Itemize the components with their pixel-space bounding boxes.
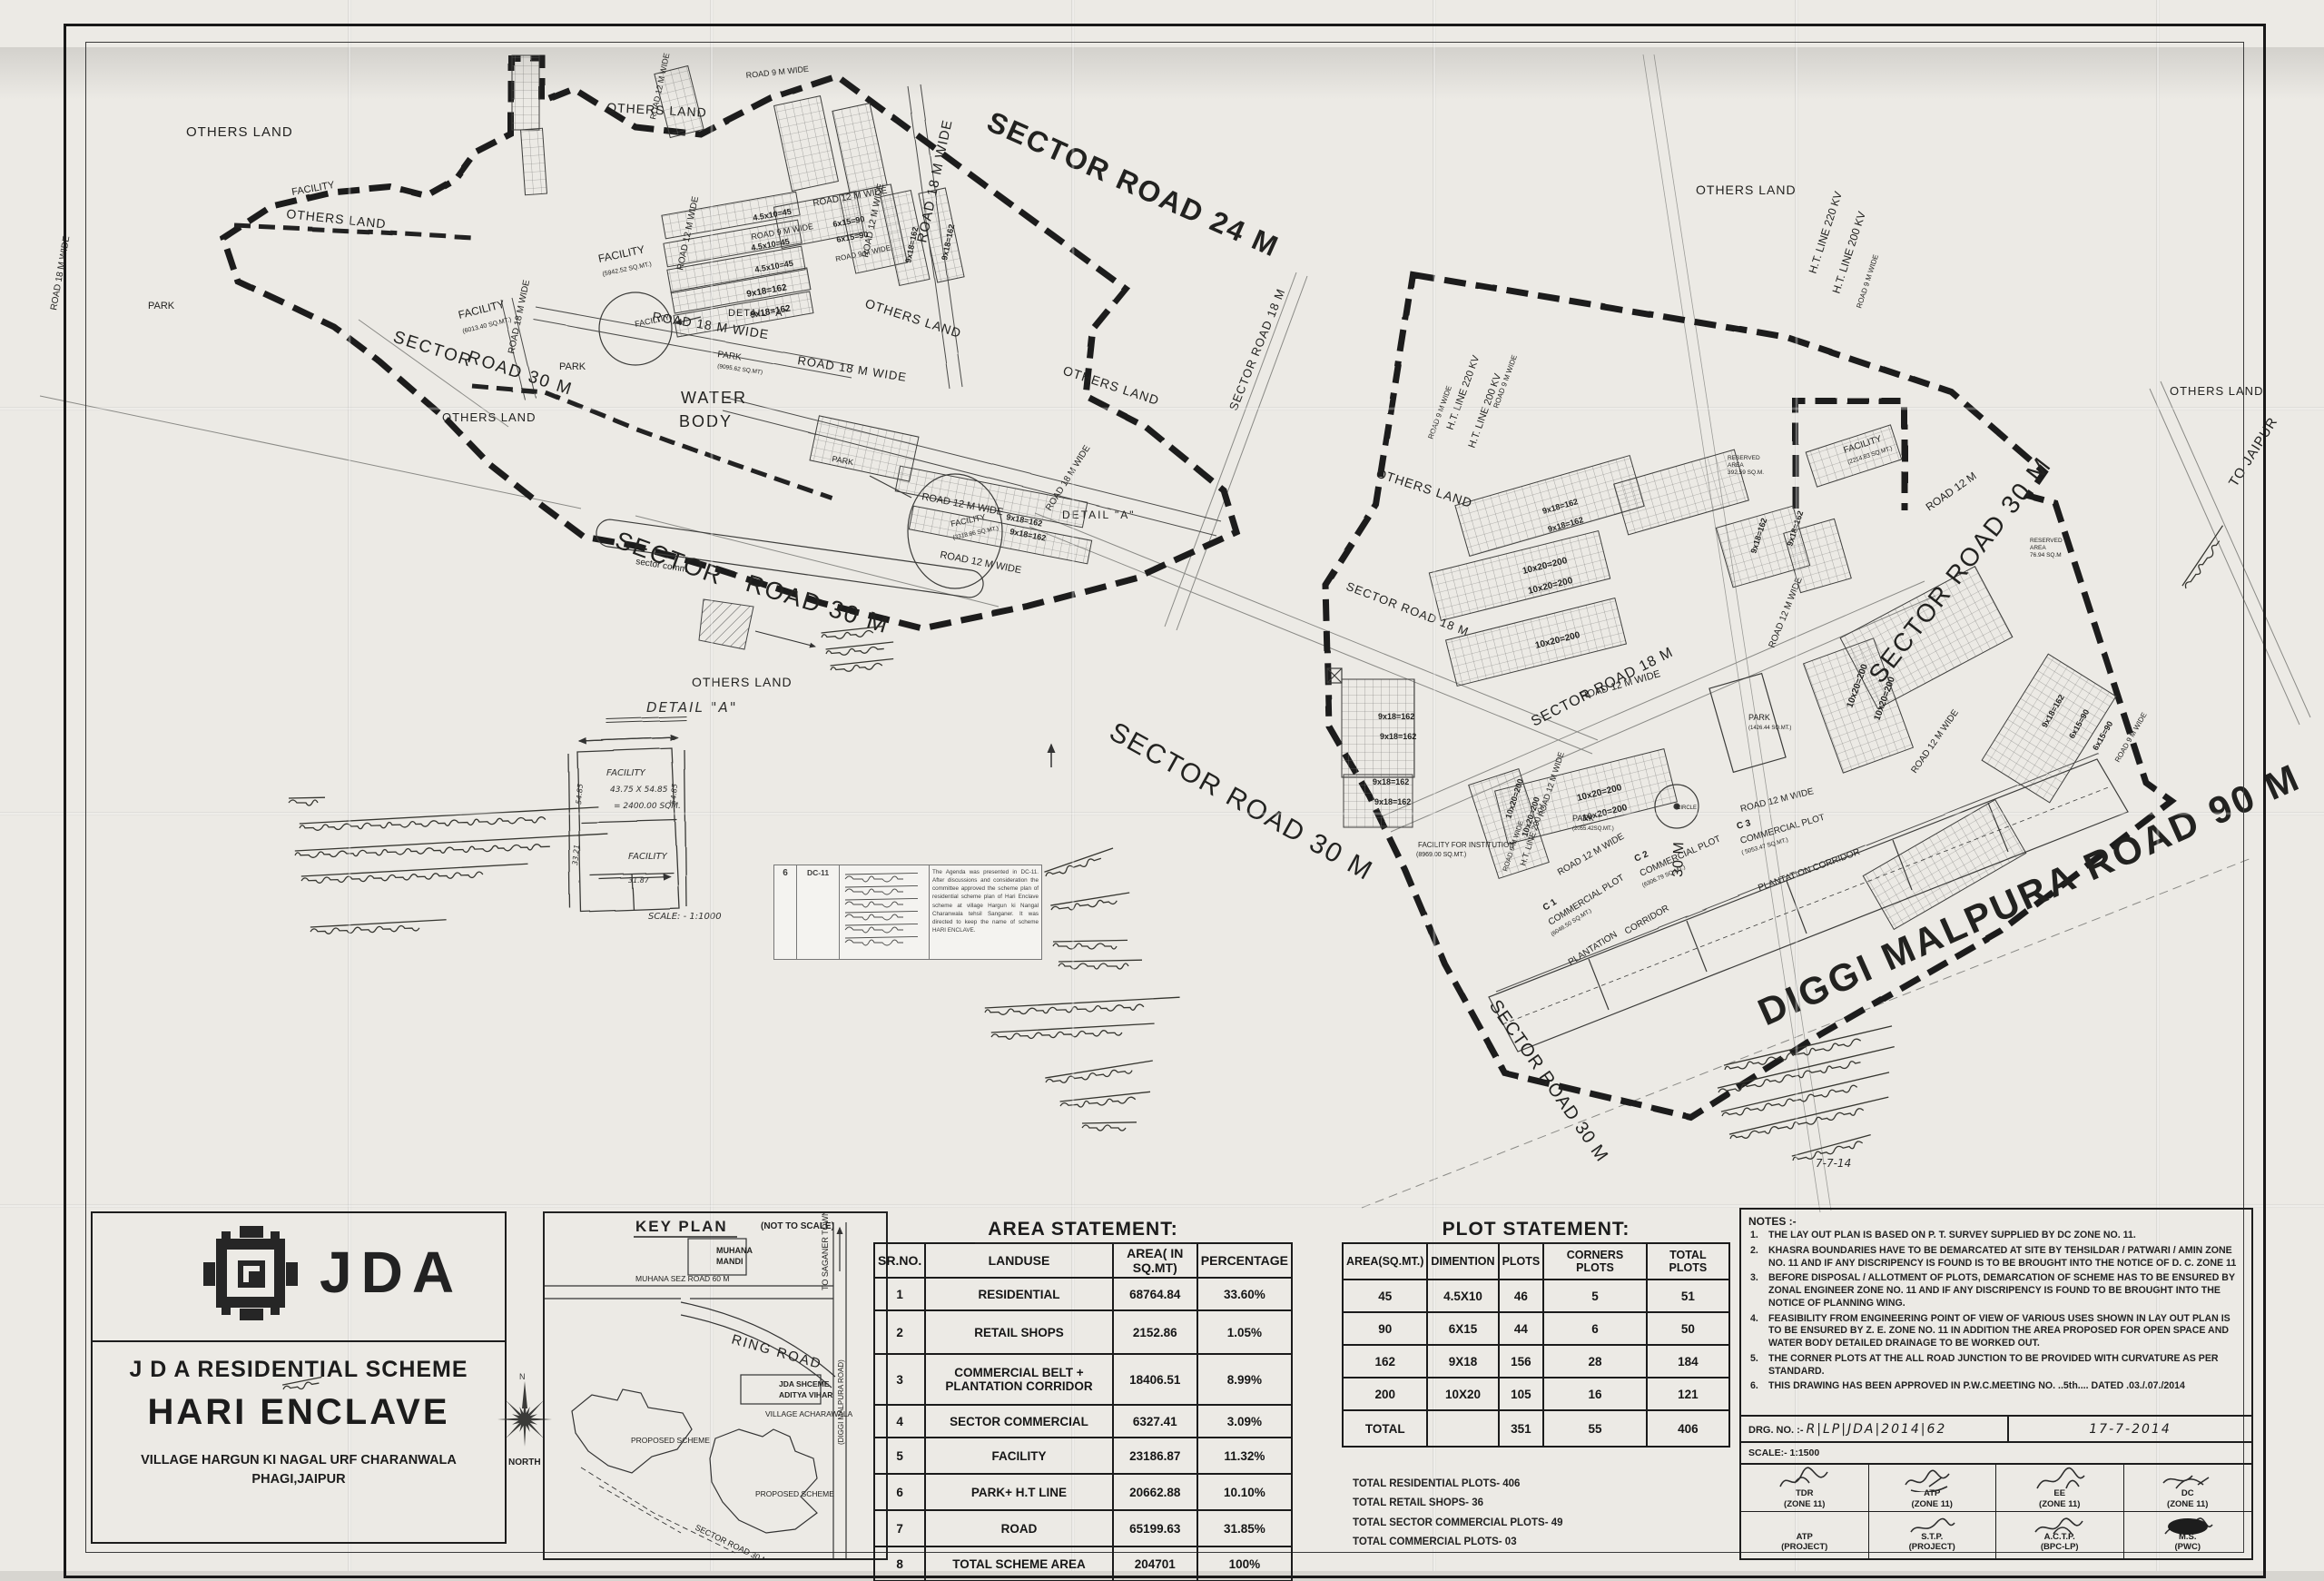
table-cell: ROAD (925, 1510, 1112, 1546)
table-cell: 3.09% (1197, 1405, 1292, 1438)
table-cell: SR.NO. (874, 1243, 925, 1278)
note-item: 1.THE LAY OUT PLAN IS BASED ON P. T. SUR… (1748, 1230, 2244, 1242)
table-cell: 5 (874, 1438, 925, 1474)
table-cell: PARK+ H.T LINE (925, 1474, 1112, 1510)
map-label: JDA SHCEME (779, 1379, 830, 1388)
key-plan-title: KEY PLAN (635, 1218, 728, 1235)
table-cell: SECTOR COMMERCIAL (925, 1405, 1112, 1438)
table-cell: TOTAL (1343, 1410, 1427, 1447)
plot-statement-table: AREA(SQ.MT.)DIMENTIONPLOTSCORNERS PLOTST… (1342, 1242, 1730, 1448)
table-cell: 11.32% (1197, 1438, 1292, 1474)
table-cell: LANDUSE (925, 1243, 1112, 1278)
scheme-type: J D A RESIDENTIAL SCHEME (93, 1357, 505, 1383)
signature-cell: ATP(ZONE 11) (1869, 1465, 1997, 1512)
drawing-number-row: DRG. NO. :- R|LP|JDA|2014|62 17-7-2014 (1741, 1415, 2251, 1441)
signature-label: (PWC) (2124, 1542, 2252, 1553)
plot-summary-line: TOTAL RETAIL SHOPS- 36 (1353, 1494, 1730, 1513)
map-label: ADITYA VIHAR (779, 1390, 832, 1399)
agenda-sr-no: 6 (774, 865, 797, 959)
note-item: 3.BEFORE DISPOSAL / ALLOTMENT OF PLOTS, … (1748, 1272, 2244, 1309)
signature-scribble (2030, 1514, 2090, 1539)
agency-header: JDA (93, 1213, 505, 1342)
signature-cell: M.S.(PWC) (2124, 1512, 2252, 1559)
table-cell: 7 (874, 1510, 925, 1546)
signature-label: (ZONE 11) (2124, 1499, 2252, 1510)
table-cell: 184 (1647, 1345, 1729, 1378)
signature-label: (PROJECT) (1869, 1542, 1996, 1553)
drg-no-value: R|LP|JDA|2014|62 (1807, 1422, 1947, 1437)
table-cell: 45 (1343, 1280, 1427, 1312)
signature-cell: DC(ZONE 11) (2124, 1465, 2252, 1512)
scale-value: SCALE:- 1:1500 (1748, 1448, 1819, 1458)
key-plan: KEY PLAN (NOT TO SCALE) MUHANAMANDIMUHAN… (543, 1211, 888, 1560)
table-cell: 8.99% (1197, 1354, 1292, 1405)
signature-grid: TDR(ZONE 11)ATP(ZONE 11)EE(ZONE 11)DC(ZO… (1741, 1463, 2251, 1558)
signature-cell: TDR(ZONE 11) (1741, 1465, 1869, 1512)
scheme-name: HARI ENCLAVE (93, 1392, 505, 1433)
note-item: 4.FEASIBILITY FROM ENGINEERING POINT OF … (1748, 1313, 2244, 1350)
table-cell: 204701 (1113, 1546, 1197, 1581)
table-cell: 6 (874, 1474, 925, 1510)
table-cell: 16 (1543, 1378, 1646, 1410)
table-cell: 33.60% (1197, 1278, 1292, 1310)
table-cell (1427, 1410, 1498, 1447)
table-cell: 65199.63 (1113, 1510, 1197, 1546)
map-label: MUHANA SEZ ROAD 60 M (635, 1274, 729, 1283)
table-cell: 20662.88 (1113, 1474, 1197, 1510)
table-cell: 44 (1499, 1312, 1544, 1345)
table-cell: PLOTS (1499, 1243, 1544, 1280)
table-cell: CORNERS PLOTS (1543, 1243, 1646, 1280)
area-row: 3COMMERCIAL BELT + PLANTATION CORRIDOR18… (874, 1354, 1292, 1405)
table-cell: 3 (874, 1354, 925, 1405)
table-cell: RESIDENTIAL (925, 1278, 1112, 1310)
map-label: SECTOR ROAD 30 M (694, 1523, 770, 1558)
table-cell: 2152.86 (1113, 1310, 1197, 1354)
table-cell: 351 (1499, 1410, 1544, 1447)
table-cell: 162 (1343, 1345, 1427, 1378)
plot-total-row: TOTAL35155406 (1343, 1410, 1729, 1447)
signature-scribble (2158, 1467, 2218, 1492)
signature-cell: ATP(PROJECT) (1741, 1512, 1869, 1559)
signature-cell: EE(ZONE 11) (1996, 1465, 2124, 1512)
table-cell: TOTAL PLOTS (1647, 1243, 1729, 1280)
area-row: 4SECTOR COMMERCIAL6327.413.09% (874, 1405, 1292, 1438)
notes-heading: NOTES :- (1748, 1215, 2244, 1228)
title-block: JDA J D A RESIDENTIAL SCHEME HARI ENCLAV… (91, 1211, 507, 1544)
handwriting-scribble (845, 911, 918, 920)
plot-summary-line: TOTAL COMMERCIAL PLOTS- 03 (1353, 1533, 1730, 1552)
table-cell: 100% (1197, 1546, 1292, 1581)
table-cell: 18406.51 (1113, 1354, 1197, 1405)
table-cell: 5 (1543, 1280, 1646, 1312)
village-line: VILLAGE HARGUN KI NAGAL URF CHARANWALA (93, 1453, 505, 1467)
notes-block: NOTES :- 1.THE LAY OUT PLAN IS BASED ON … (1739, 1208, 2253, 1560)
table-cell: 9X18 (1427, 1345, 1498, 1378)
plot-summary-line: TOTAL SECTOR COMMERCIAL PLOTS- 49 (1353, 1514, 1730, 1533)
table-cell: COMMERCIAL BELT + PLANTATION CORRIDOR (925, 1354, 1112, 1405)
drg-no-label: DRG. NO. :- (1748, 1425, 1804, 1436)
table-cell: 156 (1499, 1345, 1544, 1378)
handwriting-scribble (845, 898, 918, 907)
signature-scribble (2030, 1467, 2090, 1492)
map-label: (DIGGI MALPURA ROAD) (837, 1359, 845, 1445)
table-cell: 6X15 (1427, 1312, 1498, 1345)
map-label: MANDI (716, 1257, 743, 1266)
plot-totals-summary: TOTAL RESIDENTIAL PLOTS- 406TOTAL RETAIL… (1342, 1475, 1730, 1552)
signature-scribble (1775, 1467, 1835, 1492)
plot-row: 906X1544650 (1343, 1312, 1729, 1345)
plot-row: 454.5X1046551 (1343, 1280, 1729, 1312)
note-item: 6.THIS DRAWING HAS BEEN APPROVED IN P.W.… (1748, 1380, 2244, 1393)
signature-label: (BPC-LP) (1996, 1542, 2123, 1553)
table-cell: 105 (1499, 1378, 1544, 1410)
map-label: RING ROAD (730, 1332, 824, 1373)
map-label: VILLAGE ACHARAWALA (765, 1409, 853, 1418)
map-label: MUHANA (716, 1246, 753, 1255)
table-cell: 121 (1647, 1378, 1729, 1410)
table-cell: 50 (1647, 1312, 1729, 1345)
table-cell: 46 (1499, 1280, 1544, 1312)
table-cell: 55 (1543, 1410, 1646, 1447)
agenda-approval-table: 6 DC-11 The Agenda was presented in DC-1… (773, 865, 1042, 960)
table-cell: 90 (1343, 1312, 1427, 1345)
table-cell: 1 (874, 1278, 925, 1310)
table-cell: 68764.84 (1113, 1278, 1197, 1310)
signature-label: ATP (1741, 1532, 1868, 1543)
signature-label: (ZONE 11) (1869, 1499, 1996, 1510)
table-cell: TOTAL SCHEME AREA (925, 1546, 1112, 1581)
scanned-layout-plan-sheet: OTHERS LANDOTHERS LANDOTHERS LANDSECTOR … (0, 0, 2324, 1581)
area-row: 1RESIDENTIAL68764.8433.60% (874, 1278, 1292, 1310)
table-cell: 2 (874, 1310, 925, 1354)
table-cell: 10X20 (1427, 1378, 1498, 1410)
notes-list: 1.THE LAY OUT PLAN IS BASED ON P. T. SUR… (1748, 1230, 2244, 1393)
table-cell: 4.5X10 (1427, 1280, 1498, 1312)
handwriting-scribble (845, 924, 918, 933)
district-line: PHAGI,JAIPUR (93, 1472, 505, 1487)
signature-cell: A.C.T.P.(BPC-LP) (1996, 1512, 2124, 1559)
table-cell: RETAIL SHOPS (925, 1310, 1112, 1354)
area-statement-table: SR.NO.LANDUSEAREA( IN SQ.MT)PERCENTAGE 1… (873, 1242, 1293, 1581)
signature-label: (PROJECT) (1741, 1542, 1868, 1553)
table-cell: 10.10% (1197, 1474, 1292, 1510)
plot-summary-line: TOTAL RESIDENTIAL PLOTS- 406 (1353, 1475, 1730, 1494)
handwriting-scribble (845, 936, 918, 945)
table-cell: 23186.87 (1113, 1438, 1197, 1474)
handwriting-scribble (845, 873, 918, 882)
table-cell: 28 (1543, 1345, 1646, 1378)
area-row: 6PARK+ H.T LINE20662.8810.10% (874, 1474, 1292, 1510)
table-cell: 8 (874, 1546, 925, 1581)
plot-row: 1629X1815628184 (1343, 1345, 1729, 1378)
table-cell: AREA( IN SQ.MT) (1113, 1243, 1197, 1278)
agenda-english-text: The Agenda was presented in DC-11. After… (930, 865, 1041, 959)
table-cell: 1.05% (1197, 1310, 1292, 1354)
signature-cell: S.T.P.(PROJECT) (1869, 1512, 1997, 1559)
plot-statement: PLOT STATEMENT: AREA(SQ.MT.)DIMENTIONPLO… (1342, 1211, 1730, 1552)
note-item: 5.THE CORNER PLOTS AT THE ALL ROAD JUNCT… (1748, 1353, 2244, 1378)
north-label: NORTH (508, 1457, 541, 1467)
north-letter: N (519, 1372, 526, 1381)
drg-date: 17-7-2014 (2089, 1422, 2171, 1437)
table-cell: 6327.41 (1113, 1405, 1197, 1438)
jda-logo (203, 1226, 298, 1320)
map-label: TO SAGANER TOWN (821, 1213, 830, 1290)
table-cell: 31.85% (1197, 1510, 1292, 1546)
table-cell: 200 (1343, 1378, 1427, 1410)
table-cell: 6 (1543, 1312, 1646, 1345)
signature-label: (ZONE 11) (1741, 1499, 1868, 1510)
area-statement-title: AREA STATEMENT: (873, 1211, 1293, 1242)
table-cell: DIMENTION (1427, 1243, 1498, 1280)
agency-name: JDA (320, 1239, 463, 1306)
plot-statement-title: PLOT STATEMENT: (1342, 1211, 1730, 1242)
signature-scribble (1902, 1514, 1962, 1539)
note-item: 2.KHASRA BOUNDARIES HAVE TO BE DEMARCATE… (1748, 1245, 2244, 1270)
signature-label: (ZONE 11) (1996, 1499, 2123, 1510)
handwriting-scribble (845, 885, 918, 894)
area-row: 2RETAIL SHOPS2152.861.05% (874, 1310, 1292, 1354)
scale-row: SCALE:- 1:1500 (1741, 1441, 2251, 1463)
area-row: 7ROAD65199.6331.85% (874, 1510, 1292, 1546)
signature-scribble (1902, 1467, 1962, 1492)
table-cell: FACILITY (925, 1438, 1112, 1474)
table-cell: 51 (1647, 1280, 1729, 1312)
table-cell: PERCENTAGE (1197, 1243, 1292, 1278)
area-statement: AREA STATEMENT: SR.NO.LANDUSEAREA( IN SQ… (873, 1211, 1293, 1581)
map-label: PROPOSED SCHEME (755, 1489, 834, 1498)
table-cell: 406 (1647, 1410, 1729, 1447)
table-cell: AREA(SQ.MT.) (1343, 1243, 1427, 1280)
signature-scribble (2158, 1514, 2218, 1539)
area-row: 8TOTAL SCHEME AREA204701100% (874, 1546, 1292, 1581)
agenda-code: DC-11 (797, 865, 840, 959)
area-row: 5FACILITY23186.8711.32% (874, 1438, 1292, 1474)
plot-row: 20010X2010516121 (1343, 1378, 1729, 1410)
table-cell: 4 (874, 1405, 925, 1438)
map-label: PROPOSED SCHEME (631, 1436, 710, 1445)
agenda-hindi-text (840, 865, 930, 959)
